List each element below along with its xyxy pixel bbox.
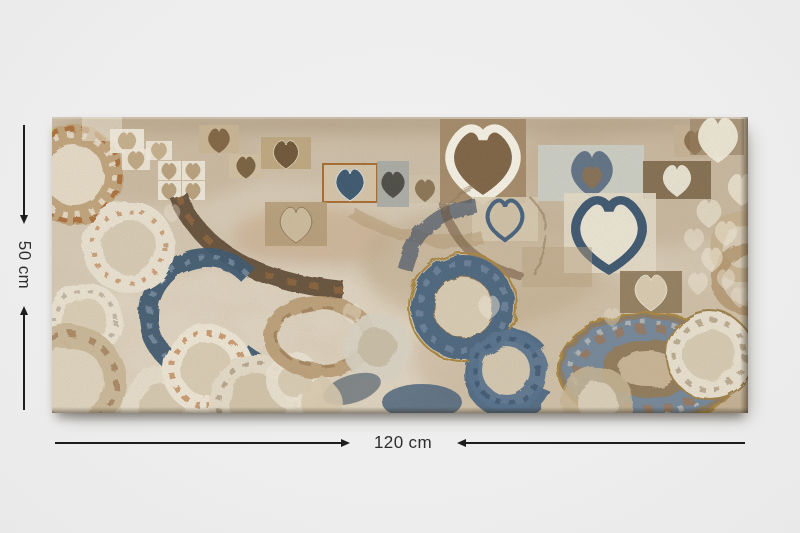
width-arrow-right-icon [341, 439, 350, 447]
artwork-image [52, 117, 748, 413]
width-dimension-line-left [55, 442, 341, 444]
width-dimension-line-right [466, 442, 745, 444]
height-dimension-line-bottom [23, 315, 25, 410]
height-dimension-label: 50 cm [14, 241, 34, 289]
canvas-print [52, 117, 748, 413]
height-arrow-down-icon [20, 215, 28, 224]
width-arrow-left-icon [457, 439, 466, 447]
product-dimension-image: 50 cm 120 cm [0, 0, 800, 533]
height-dimension-line-top [23, 125, 25, 215]
height-arrow-up-icon [20, 306, 28, 315]
width-dimension-label: 120 cm [374, 433, 432, 453]
